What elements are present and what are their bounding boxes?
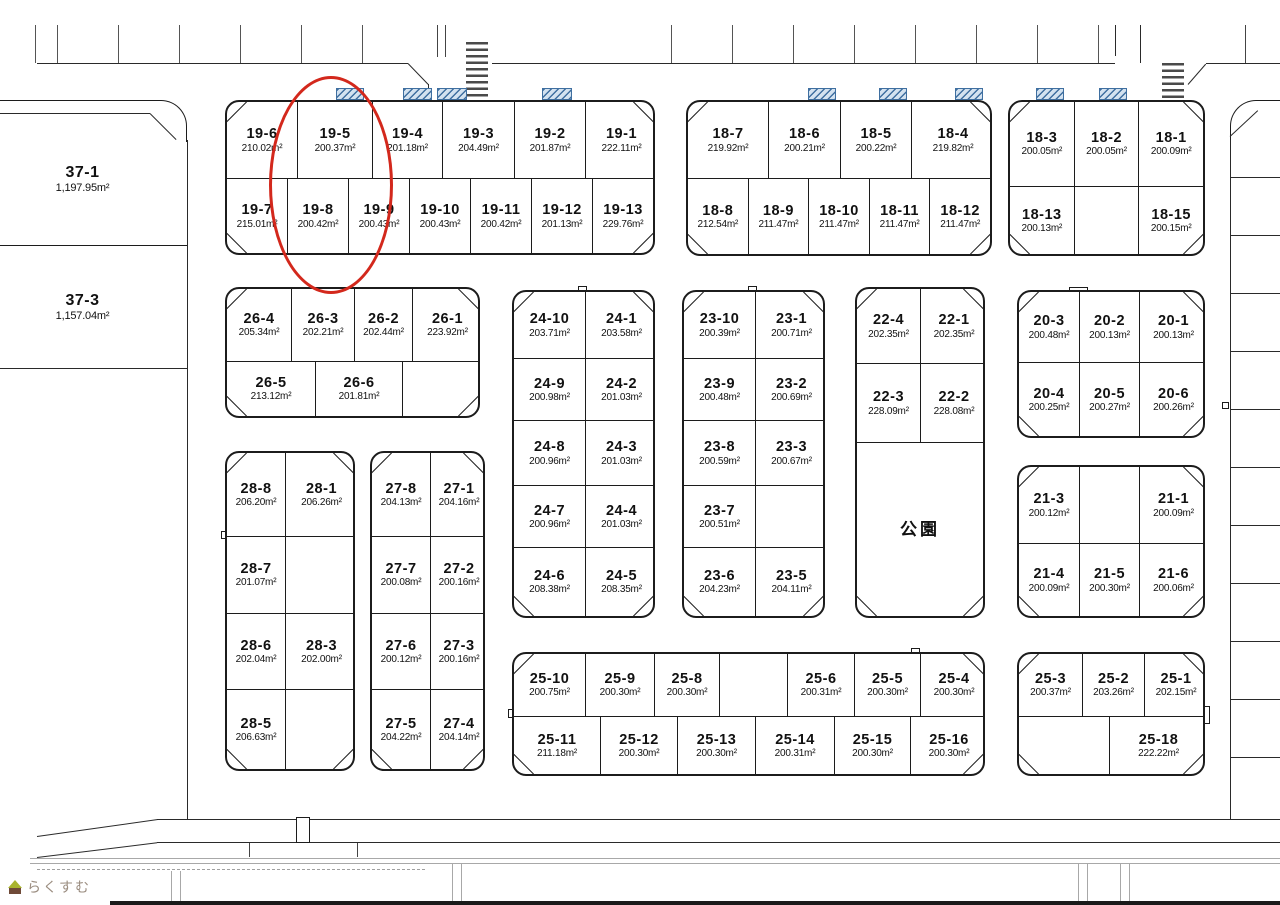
lot-area: 200.30m² [929,748,970,759]
lot-area: 202.35m² [868,329,909,340]
lot-number: 19-7 [241,202,272,218]
left-strip-lot-line [0,368,187,369]
center-dashed-line [37,869,425,870]
lot-number: 23-9 [704,376,735,392]
block-28: 28-8206.20m²28-1206.26m²28-7201.07m²28-6… [225,451,355,771]
lot-25-6[interactable]: 25-6200.31m² [787,654,854,716]
bottom-road-tick [249,843,250,857]
lot-number: 18-10 [819,203,859,219]
map-bottom-border [110,901,1280,905]
lot-number: 25-11 [538,732,577,748]
lot-area: 200.30m² [852,748,893,759]
lot-21-3[interactable]: 21-3200.12m² [1019,467,1079,543]
lot-area: 208.38m² [529,584,570,595]
lot-number: 20-6 [1158,386,1189,402]
lot-area: 200.30m² [600,687,641,698]
lot-18-7[interactable]: 18-7219.92m² [688,102,768,178]
lot-18-5[interactable]: 18-5200.22m² [840,102,911,178]
lot-area: 204.16m² [439,497,480,508]
lot-area: 200.09m² [1151,146,1192,157]
lot-area: 223.92m² [427,327,468,338]
lot-18-3[interactable]: 18-3200.05m² [1010,102,1074,186]
right-strip-outer-corner [1230,100,1280,142]
lot-27-7[interactable]: 27-7200.08m² [372,536,430,613]
top-boundary-tick [1245,25,1246,63]
lot-area: 200.21m² [784,143,825,154]
sidewalk-branch [1129,863,1130,901]
lot-number: 27-2 [443,561,474,577]
lot-area: 204.23m² [699,584,740,595]
lot-number: 19-2 [534,126,565,142]
lot-number: 24-3 [606,439,637,455]
crosswalk [466,42,488,100]
lot-area: 211.47m² [819,219,859,230]
lot-number: 25-18 [1139,732,1179,748]
lot-area: 201.07m² [236,577,277,588]
lot-26-6[interactable]: 26-6201.81m² [315,361,402,416]
lot-number: 27-3 [443,638,474,654]
lot-area: 200.51m² [699,519,740,530]
lot-18-10[interactable]: 18-10211.47m² [808,178,869,254]
lot-area: 200.30m² [619,748,660,759]
sidewalk-line [30,863,1280,864]
lot-number: 28-3 [306,638,337,654]
lot-number: 26-6 [343,375,374,391]
lot-25-2[interactable]: 25-2203.26m² [1082,654,1144,716]
lot-23-10[interactable]: 23-10200.39m² [684,292,755,358]
lot-number: 18-9 [763,203,794,219]
lot-37-1[interactable]: 37-11,197.95m² [0,113,187,245]
lot-23-7[interactable]: 23-7200.51m² [684,485,755,547]
lot-area: 219.82m² [933,143,974,154]
lot-number: 26-4 [243,311,274,327]
block-21: 21-3200.12m²21-1200.09m²21-4200.09m²21-5… [1017,465,1205,618]
lot-number: 26-3 [307,311,338,327]
sidewalk-branch [1078,863,1079,901]
lot-area: 228.08m² [934,406,975,417]
lot-26-5[interactable]: 26-5213.12m² [227,361,315,416]
lot-area: 200.25m² [1029,402,1070,413]
lot-number: 19-11 [482,202,521,218]
lot-number: 24-6 [534,568,565,584]
lot-19-11[interactable]: 19-11200.42m² [470,178,531,253]
block-18-right: 18-3200.05m²18-2200.05m²18-1200.09m²18-1… [1008,100,1205,256]
lot-number: 23-10 [700,311,740,327]
lot-18-2[interactable]: 18-2200.05m² [1074,102,1139,186]
lot-26-3[interactable]: 26-3202.21m² [291,289,354,361]
lot-number: 27-5 [385,716,416,732]
lot-number: 25-14 [775,732,815,748]
lot-area: 200.96m² [529,456,570,467]
lot-number: 24-9 [534,376,565,392]
lot-area: 200.98m² [529,392,570,403]
lot-number: 22-4 [873,312,904,328]
lot-number: 18-13 [1022,207,1062,223]
hatch-mark [542,88,572,100]
lot-number: 27-8 [385,481,416,497]
lot-number: 25-3 [1035,671,1066,687]
right-road-edge [1230,140,1231,820]
block-37: 37-11,197.95m²37-31,157.04m² [0,113,187,368]
block-25-left: 25-10200.75m²25-9200.30m²25-8200.30m²25-… [512,652,985,776]
lot-number: 37-1 [65,164,99,182]
right-lot-tick [1230,757,1280,758]
lot-number: 28-7 [240,561,271,577]
lot-area: 228.09m² [868,406,909,417]
lot-18-9[interactable]: 18-9211.47m² [748,178,809,254]
lot-number: 24-5 [606,568,637,584]
lot-number: 18-2 [1091,130,1122,146]
lot-area: 200.31m² [775,748,816,759]
lot-area: 200.13m² [1089,330,1130,341]
hatch-mark [403,88,432,100]
lot-area: 200.71m² [771,328,812,339]
lot-area: 200.16m² [439,577,480,588]
lot-area: 215.01m² [237,219,278,230]
lot-number: 24-8 [534,439,565,455]
lot-number: 27-7 [385,561,416,577]
block-26: 26-4205.34m²26-3202.21m²26-2202.44m²26-1… [225,287,480,418]
lot-25-16[interactable]: 25-16200.30m² [910,716,985,774]
empty-lot [402,361,480,416]
lot-area: 200.48m² [1029,330,1070,341]
lot-area: 200.05m² [1022,146,1063,157]
sidewalk-branch [461,863,462,901]
lot-25-15[interactable]: 25-15200.30m² [834,716,910,774]
lot-area: 200.08m² [381,577,422,588]
lot-number: 23-7 [704,503,735,519]
lot-20-2[interactable]: 20-2200.13m² [1079,292,1139,362]
lot-24-9[interactable]: 24-9200.98m² [514,358,585,420]
lot-number: 25-8 [671,671,702,687]
right-lot-tick [1230,235,1280,236]
lot-area: 200.30m² [667,687,708,698]
lot-area: 200.06m² [1153,583,1194,594]
lot-number: 18-4 [937,126,968,142]
block-24: 24-10203.71m²24-1203.58m²24-9200.98m²24-… [512,290,655,618]
lot-18-6[interactable]: 18-6200.21m² [768,102,840,178]
top-boundary-tick [445,25,446,57]
lot-area: 219.92m² [708,143,749,154]
block-23: 23-10200.39m²23-1200.71m²23-9200.48m²23-… [682,290,825,618]
road-edge [1115,25,1116,56]
lot-27-6[interactable]: 27-6200.12m² [372,613,430,689]
lot-number: 23-1 [776,311,807,327]
lot-number: 26-1 [432,311,463,327]
road-gate-notch [296,817,310,843]
lot-number: 20-2 [1094,313,1125,329]
lot-number: 23-6 [704,568,735,584]
lot-number: 25-16 [929,732,969,748]
lot-22-4[interactable]: 22-4202.35m² [857,289,920,363]
lot-24-8[interactable]: 24-8200.96m² [514,420,585,484]
empty-lot [1019,716,1109,774]
lot-number: 18-1 [1156,130,1187,146]
lot-number: 22-1 [938,312,969,328]
lot-area: 201.13m² [542,219,583,230]
lot-area: 204.13m² [381,497,422,508]
lot-28-3[interactable]: 28-3202.00m² [285,613,355,689]
lot-28-8[interactable]: 28-8206.20m² [227,453,285,536]
bottom-road-edge [157,842,1280,843]
lot-area: 204.49m² [458,143,499,154]
lot-18-1[interactable]: 18-1200.09m² [1138,102,1203,186]
lot-number: 21-4 [1033,566,1064,582]
lot-number: 25-15 [853,732,893,748]
lot-25-9[interactable]: 25-9200.30m² [585,654,654,716]
park-lot: 公園 [857,442,983,616]
lot-24-2[interactable]: 24-2201.03m² [585,358,655,420]
lot-area: 202.15m² [1156,687,1197,698]
lot-area: 206.63m² [236,732,277,743]
lot-number: 24-7 [534,503,565,519]
lot-number: 25-9 [604,671,635,687]
lot-area: 206.20m² [236,497,277,508]
hatch-mark [879,88,907,100]
lot-area: 200.48m² [699,392,740,403]
lot-number: 25-12 [619,732,659,748]
crosswalk [1162,63,1184,101]
lot-number: 37-3 [65,292,99,310]
lot-number: 19-6 [246,126,277,142]
lot-area: 200.05m² [1086,146,1127,157]
lot-number: 21-3 [1033,491,1064,507]
lot-19-2[interactable]: 19-2201.87m² [514,102,585,178]
lot-area: 200.12m² [1029,508,1070,519]
hatch-mark [1036,88,1064,100]
lot-25-11[interactable]: 25-11211.18m² [514,716,600,774]
lot-area: 1,157.04m² [56,310,110,322]
rakusumu-logo: らくすむ [8,877,91,897]
lot-number: 28-5 [240,716,271,732]
road-edge [1140,25,1141,63]
lot-number: 18-3 [1026,130,1057,146]
lot-area: 1,197.95m² [56,182,110,194]
lot-area: 200.27m² [1089,402,1130,413]
lot-area: 200.13m² [1022,223,1063,234]
lot-21-5[interactable]: 21-5200.30m² [1079,543,1139,616]
lot-area: 203.26m² [1093,687,1134,698]
lot-area: 200.15m² [1151,223,1192,234]
lot-area: 201.81m² [339,391,380,402]
lot-area: 202.04m² [236,654,277,665]
lot-area: 200.30m² [696,748,737,759]
lot-area: 200.30m² [1089,583,1130,594]
lot-area: 202.00m² [301,654,342,665]
lot-number: 19-4 [392,126,423,142]
lot-27-3[interactable]: 27-3200.16m² [430,613,485,689]
lot-28-6[interactable]: 28-6202.04m² [227,613,285,689]
logo-house-icon [8,880,22,894]
lot-number: 28-8 [240,481,271,497]
lot-number: 25-5 [872,671,903,687]
lot-area: 200.75m² [529,687,570,698]
right-lot-tick [1230,409,1280,410]
lot-number: 24-1 [606,311,637,327]
lot-number: 20-3 [1033,313,1064,329]
lot-number: 25-10 [530,671,570,687]
lot-22-3[interactable]: 22-3228.09m² [857,363,920,442]
lot-25-8[interactable]: 25-8200.30m² [654,654,719,716]
hatch-mark [955,88,983,100]
road-corner [1188,64,1206,85]
lot-area: 211.47m² [758,219,798,230]
lot-24-4[interactable]: 24-4201.03m² [585,485,655,547]
sidewalk-branch [1087,863,1088,901]
lot-number: 18-12 [940,203,980,219]
lot-area: 200.09m² [1029,583,1070,594]
lot-area: 200.43m² [420,219,461,230]
block-22: 22-4202.35m²22-1202.35m²22-3228.09m²22-2… [855,287,985,618]
lot-25-14[interactable]: 25-14200.31m² [755,716,834,774]
lot-27-2[interactable]: 27-2200.16m² [430,536,485,613]
lot-25-12[interactable]: 25-12200.30m² [600,716,677,774]
lot-25-4[interactable]: 25-4200.30m² [920,654,985,716]
right-lot-tick [1230,525,1280,526]
lot-number: 26-5 [255,375,286,391]
lot-number: 21-6 [1158,566,1189,582]
lot-25-13[interactable]: 25-13200.30m² [677,716,755,774]
lot-area: 201.18m² [387,143,428,154]
hatch-mark [808,88,836,100]
lot-number: 23-8 [704,439,735,455]
empty-lot [719,654,787,716]
lot-number: 27-1 [443,481,474,497]
bottom-road-edge [37,819,158,837]
lot-23-3[interactable]: 23-3200.67m² [755,420,825,484]
lot-24-7[interactable]: 24-7200.96m² [514,485,585,547]
lot-area: 200.30m² [867,687,908,698]
sidewalk-branch [1120,863,1121,901]
lot-24-10[interactable]: 24-10203.71m² [514,292,585,358]
lot-25-1[interactable]: 25-1202.15m² [1144,654,1205,716]
lot-number: 19-13 [603,202,643,218]
lot-area: 213.12m² [251,391,292,402]
lot-area: 200.16m² [439,654,480,665]
lot-area: 200.26m² [1153,402,1194,413]
lot-area: 211.47m² [880,219,920,230]
lot-20-5[interactable]: 20-5200.27m² [1079,362,1139,436]
top-boundary-tick [437,25,438,57]
lot-area: 222.22m² [1138,748,1179,759]
lot-number: 25-13 [697,732,737,748]
lot-number: 25-2 [1098,671,1129,687]
lot-number: 23-2 [776,376,807,392]
lot-number: 27-4 [443,716,474,732]
lot-area: 200.12m² [381,654,422,665]
lot-area: 222.11m² [602,143,642,154]
sidewalk-branch [452,863,453,901]
lot-number: 27-6 [385,638,416,654]
lot-26-2[interactable]: 26-2202.44m² [354,289,412,361]
boundary-notch [1222,402,1229,409]
lot-28-7[interactable]: 28-7201.07m² [227,536,285,613]
top-road-edge [1206,63,1280,64]
lot-22-2[interactable]: 22-2228.08m² [920,363,985,442]
lot-19-12[interactable]: 19-12201.13m² [531,178,592,253]
lot-number: 19-3 [463,126,494,142]
hatch-mark [437,88,467,100]
lot-area: 200.67m² [771,456,812,467]
lot-number: 24-4 [606,503,637,519]
lot-number: 25-4 [938,671,969,687]
lot-number: 21-5 [1094,566,1125,582]
lot-number: 25-6 [805,671,836,687]
lot-number: 23-5 [776,568,807,584]
lot-18-4[interactable]: 18-4219.82m² [911,102,992,178]
lot-area: 202.21m² [303,327,344,338]
lot-26-4[interactable]: 26-4205.34m² [227,289,291,361]
lot-23-8[interactable]: 23-8200.59m² [684,420,755,484]
lot-area: 204.22m² [381,732,422,743]
lot-number: 20-1 [1158,313,1189,329]
lot-number: 23-3 [776,439,807,455]
lot-area: 204.14m² [439,732,480,743]
road-corner [408,63,429,85]
lot-27-4[interactable]: 27-4204.14m² [430,689,485,769]
lot-number: 18-8 [702,203,733,219]
lot-area: 201.03m² [601,456,642,467]
lot-area: 202.44m² [363,327,404,338]
right-lot-tick [1230,699,1280,700]
lot-area: 200.37m² [1030,687,1071,698]
lot-area: 200.42m² [481,219,522,230]
lot-19-10[interactable]: 19-10200.43m² [409,178,470,253]
empty-lot [755,485,825,547]
lot-number: 18-15 [1151,207,1191,223]
lot-area: 211.18m² [537,748,577,759]
lot-area: 204.11m² [772,584,812,595]
lot-number: 24-2 [606,376,637,392]
lot-number: 22-2 [938,389,969,405]
lot-area: 208.35m² [601,584,642,595]
lot-number: 28-1 [306,481,337,497]
top-road-edge [492,63,1115,64]
right-lot-tick [1230,641,1280,642]
lot-area: 211.47m² [940,219,980,230]
lot-area: 201.87m² [530,143,571,154]
lot-area: 203.71m² [529,328,570,339]
lot-area: 200.30m² [934,687,975,698]
lot-area: 203.58m² [601,328,642,339]
lot-23-9[interactable]: 23-9200.48m² [684,358,755,420]
lot-area: 200.09m² [1153,508,1194,519]
right-lot-tick [1230,467,1280,468]
lot-number: 19-10 [420,202,460,218]
right-lot-tick [1230,583,1280,584]
lot-25-5[interactable]: 25-5200.30m² [854,654,920,716]
lot-24-3[interactable]: 24-3201.03m² [585,420,655,484]
lot-area: 201.03m² [601,519,642,530]
lot-number: 22-3 [873,389,904,405]
lot-18-11[interactable]: 18-11211.47m² [869,178,930,254]
top-boundary-ticks [640,25,1110,63]
lot-number: 20-5 [1094,386,1125,402]
block-25-right: 25-3200.37m²25-2203.26m²25-1202.15m²25-1… [1017,652,1205,776]
lot-number: 18-7 [712,126,743,142]
lot-area: 200.22m² [856,143,897,154]
lot-37-3[interactable]: 37-31,157.04m² [0,245,187,368]
lot-area: 205.34m² [239,327,280,338]
hatch-mark [1099,88,1127,100]
lot-19-3[interactable]: 19-3204.49m² [442,102,514,178]
lot-27-8[interactable]: 27-8204.13m² [372,453,430,536]
sidewalk-line [30,858,1280,859]
top-road-edge [37,63,408,64]
lot-23-2[interactable]: 23-2200.69m² [755,358,825,420]
empty-lot [285,536,355,613]
lot-area: 200.69m² [771,392,812,403]
